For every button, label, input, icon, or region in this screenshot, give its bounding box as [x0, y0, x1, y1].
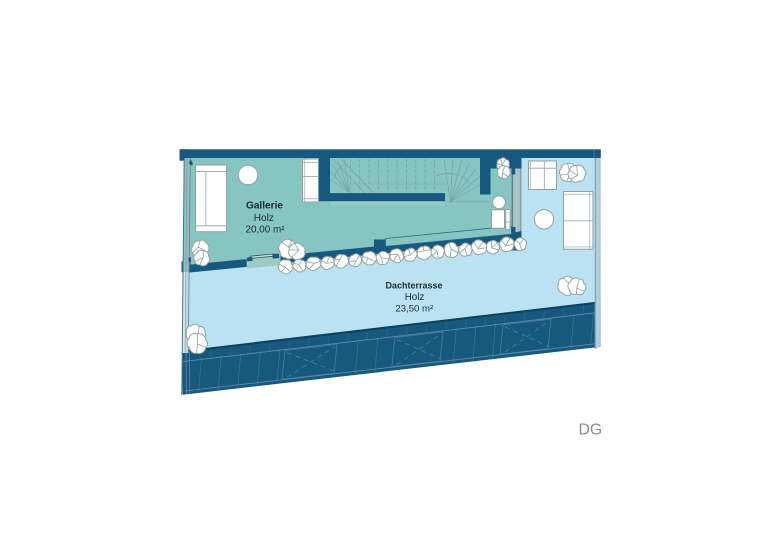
svg-text:Dachterrasse: Dachterrasse	[385, 281, 442, 291]
svg-text:20,00 m²: 20,00 m²	[246, 224, 286, 235]
svg-text:Holz: Holz	[254, 213, 274, 224]
svg-text:Holz: Holz	[405, 292, 425, 303]
svg-text:23,50 m²: 23,50 m²	[395, 304, 434, 315]
svg-text:DG: DG	[579, 422, 603, 439]
svg-text:Gallerie: Gallerie	[246, 201, 283, 212]
